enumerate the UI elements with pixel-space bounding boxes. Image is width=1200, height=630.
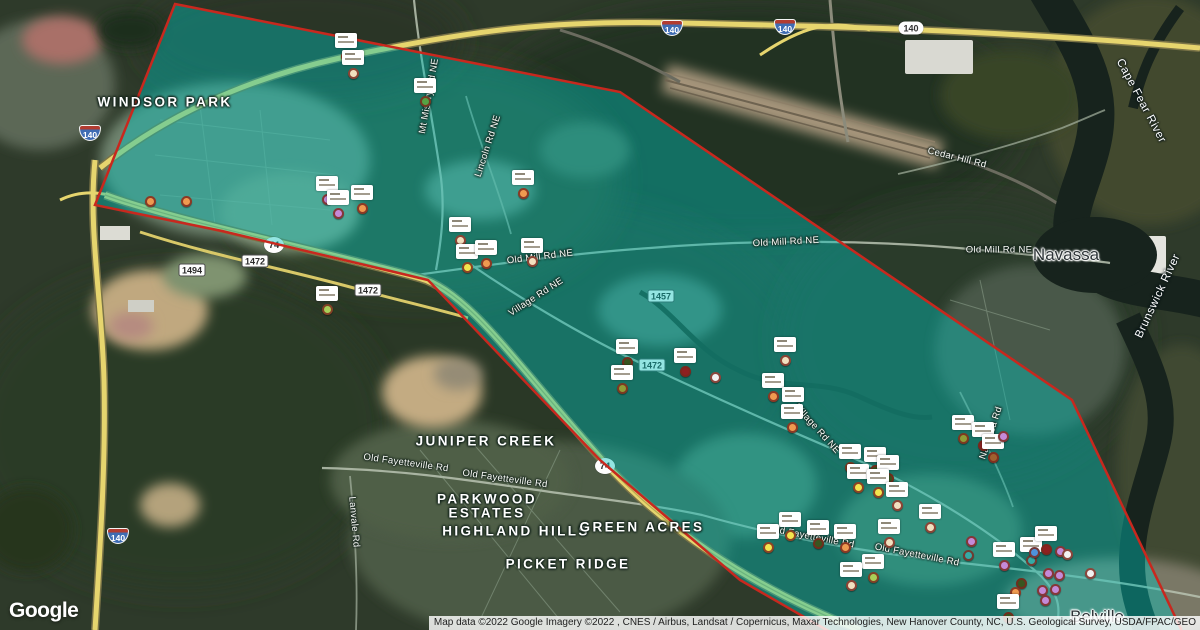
marker-dot[interactable] (958, 433, 969, 444)
marker-label-box[interactable] (862, 554, 884, 569)
marker-label-box[interactable] (616, 339, 638, 354)
map-markers (0, 0, 1200, 630)
marker-dot[interactable] (780, 355, 791, 366)
marker-label-box[interactable] (335, 33, 357, 48)
marker-label-box[interactable] (1035, 526, 1057, 541)
marker-dot[interactable] (846, 580, 857, 591)
marker-label-box[interactable] (782, 387, 804, 402)
marker-dot[interactable] (1037, 585, 1048, 596)
marker-label-box[interactable] (674, 348, 696, 363)
marker-label-box[interactable] (807, 520, 829, 535)
marker-dot[interactable] (966, 536, 977, 547)
marker-dot[interactable] (462, 262, 473, 273)
marker-dot[interactable] (518, 188, 529, 199)
marker-label-box[interactable] (327, 190, 349, 205)
marker-dot[interactable] (1062, 549, 1073, 560)
marker-dot[interactable] (357, 203, 368, 214)
marker-label-box[interactable] (834, 524, 856, 539)
marker-label-box[interactable] (351, 185, 373, 200)
marker-dot[interactable] (925, 522, 936, 533)
marker-dot[interactable] (813, 538, 824, 549)
marker-label-box[interactable] (886, 482, 908, 497)
marker-dot[interactable] (768, 391, 779, 402)
marker-label-box[interactable] (840, 562, 862, 577)
marker-dot[interactable] (988, 452, 999, 463)
marker-label-box[interactable] (993, 542, 1015, 557)
marker-label-box[interactable] (919, 504, 941, 519)
marker-dot[interactable] (853, 482, 864, 493)
marker-label-box[interactable] (757, 524, 779, 539)
marker-dot[interactable] (1085, 568, 1096, 579)
marker-dot[interactable] (868, 572, 879, 583)
marker-dot[interactable] (884, 537, 895, 548)
marker-label-box[interactable] (779, 512, 801, 527)
marker-label-box[interactable] (316, 176, 338, 191)
marker-label-box[interactable] (878, 519, 900, 534)
marker-label-box[interactable] (611, 365, 633, 380)
marker-label-box[interactable] (414, 78, 436, 93)
marker-dot[interactable] (1043, 568, 1054, 579)
marker-dot[interactable] (963, 550, 974, 561)
marker-label-box[interactable] (449, 217, 471, 232)
marker-label-box[interactable] (762, 373, 784, 388)
marker-label-box[interactable] (774, 337, 796, 352)
marker-dot[interactable] (145, 196, 156, 207)
marker-dot[interactable] (1054, 570, 1065, 581)
marker-dot[interactable] (840, 542, 851, 553)
marker-dot[interactable] (998, 431, 1009, 442)
marker-label-box[interactable] (342, 50, 364, 65)
marker-label-box[interactable] (839, 444, 861, 459)
marker-label-box[interactable] (847, 464, 869, 479)
marker-dot[interactable] (333, 208, 344, 219)
marker-dot[interactable] (1050, 584, 1061, 595)
marker-label-box[interactable] (781, 404, 803, 419)
marker-dot[interactable] (680, 366, 691, 377)
marker-dot[interactable] (348, 68, 359, 79)
marker-dot[interactable] (1041, 544, 1052, 555)
marker-dot[interactable] (787, 422, 798, 433)
marker-label-box[interactable] (877, 455, 899, 470)
marker-label-box[interactable] (316, 286, 338, 301)
marker-dot[interactable] (527, 256, 538, 267)
marker-dot[interactable] (420, 96, 431, 107)
marker-label-box[interactable] (521, 238, 543, 253)
marker-dot[interactable] (322, 304, 333, 315)
marker-label-box[interactable] (952, 415, 974, 430)
marker-label-box[interactable] (512, 170, 534, 185)
marker-label-box[interactable] (475, 240, 497, 255)
marker-dot[interactable] (617, 383, 628, 394)
marker-dot[interactable] (181, 196, 192, 207)
map-canvas[interactable]: 140140140140140747414721494147214571472 … (0, 0, 1200, 630)
marker-dot[interactable] (710, 372, 721, 383)
marker-dot[interactable] (481, 258, 492, 269)
attribution-bar: Map data ©2022 Google Imagery ©2022 , CN… (429, 616, 1200, 630)
marker-dot[interactable] (999, 560, 1010, 571)
marker-dot[interactable] (873, 487, 884, 498)
marker-dot[interactable] (1040, 595, 1051, 606)
marker-dot[interactable] (892, 500, 903, 511)
marker-dot[interactable] (785, 530, 796, 541)
marker-dot[interactable] (763, 542, 774, 553)
marker-label-box[interactable] (997, 594, 1019, 609)
marker-dot[interactable] (1029, 547, 1040, 558)
google-logo[interactable]: Google (9, 599, 78, 623)
